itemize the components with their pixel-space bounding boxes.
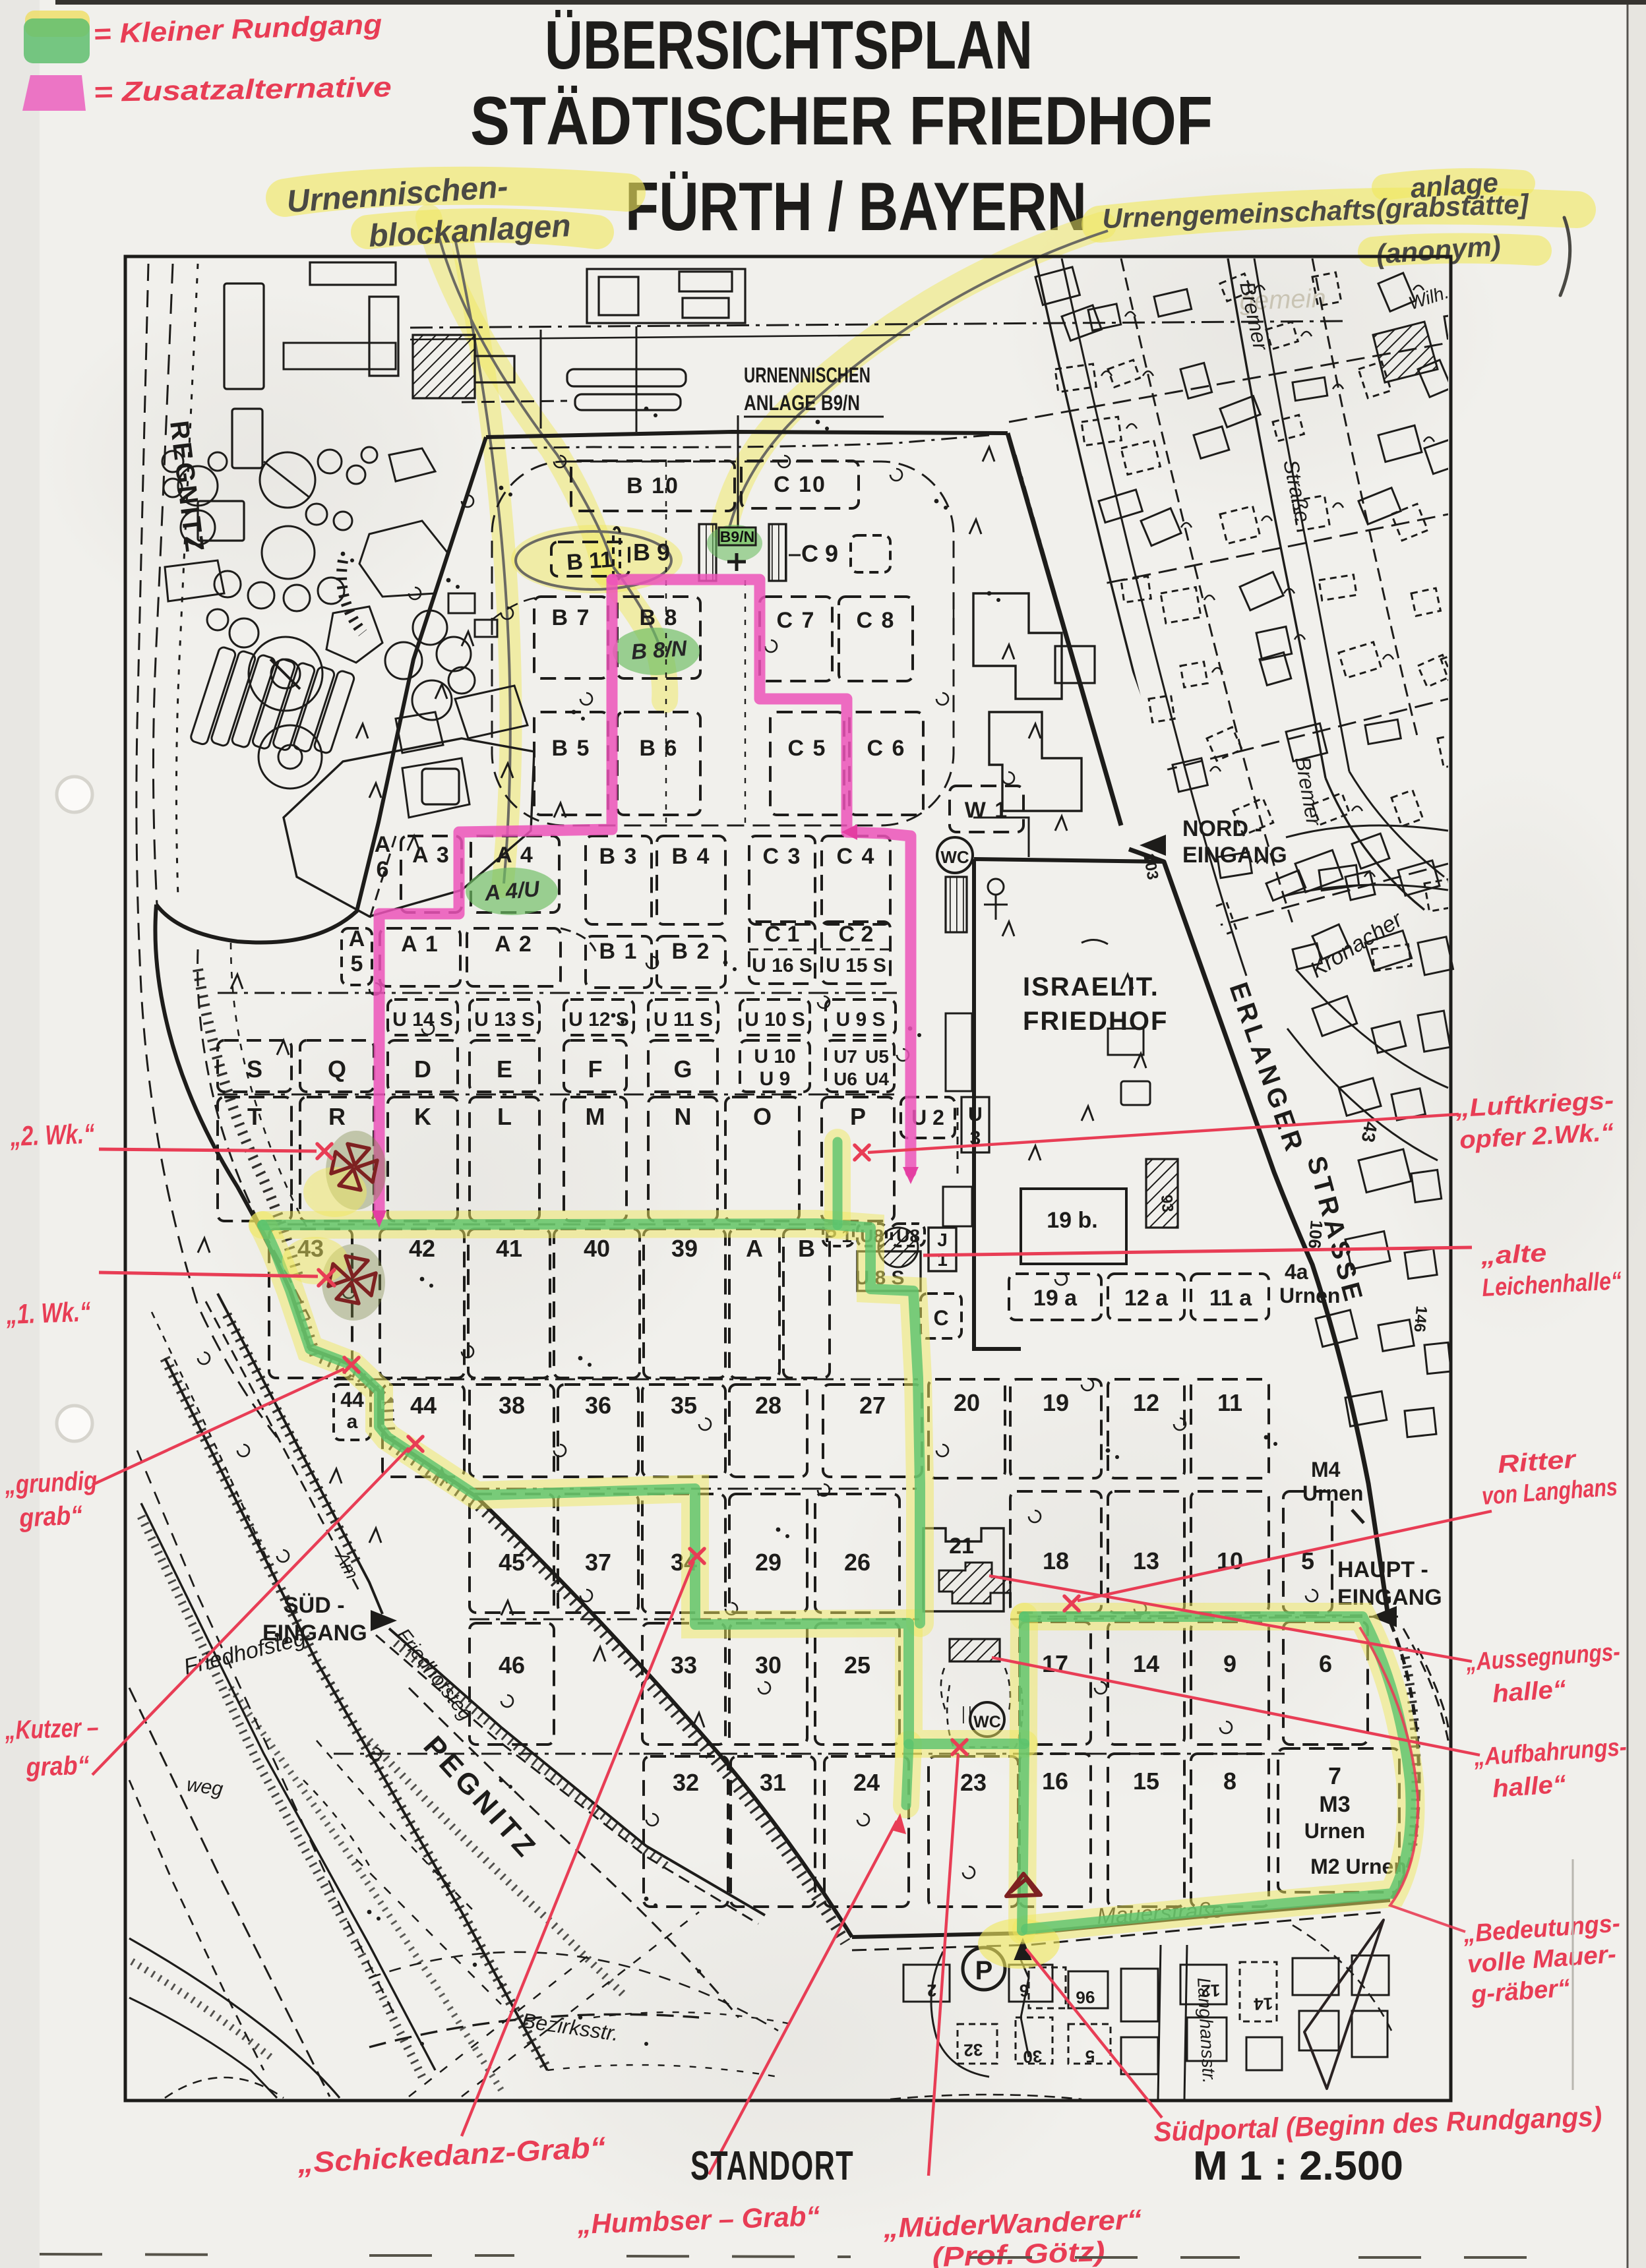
svg-text:FRIEDHOF: FRIEDHOF [1023, 1007, 1168, 1036]
svg-text:U 11 S: U 11 S [654, 1009, 713, 1030]
svg-text:18: 18 [1043, 1547, 1069, 1574]
svg-text:U 10 S: U 10 S [745, 1009, 805, 1030]
svg-text:C 10: C 10 [774, 472, 826, 497]
svg-text:N: N [675, 1103, 692, 1130]
svg-text:L: L [497, 1103, 512, 1130]
svg-text:C: C [933, 1306, 948, 1330]
svg-text:B 6: B 6 [640, 736, 679, 761]
svg-text:B 10: B 10 [626, 473, 679, 498]
svg-text:40: 40 [584, 1235, 610, 1262]
svg-text:G: G [673, 1056, 692, 1083]
svg-text:12: 12 [1133, 1389, 1159, 1416]
svg-text:A 4: A 4 [496, 843, 534, 868]
svg-text:U6: U6 [834, 1069, 857, 1089]
svg-text:„Kutzer –: „Kutzer – [4, 1713, 99, 1745]
svg-text:M 1 : 2.500: M 1 : 2.500 [1193, 2143, 1403, 2189]
svg-text:41: 41 [496, 1235, 522, 1262]
svg-text:B9/N: B9/N [720, 528, 754, 545]
svg-text:= Zusatzalternative: = Zusatzalternative [93, 71, 392, 107]
svg-text:93: 93 [1157, 1194, 1176, 1213]
svg-text:11: 11 [1217, 1389, 1242, 1416]
svg-text:14: 14 [1133, 1650, 1159, 1677]
svg-text:U 10: U 10 [754, 1046, 795, 1067]
svg-text:30: 30 [755, 1652, 781, 1679]
svg-text:25: 25 [844, 1652, 870, 1679]
svg-text:C 5: C 5 [788, 736, 827, 761]
svg-text:„1. Wk.“: „1. Wk.“ [5, 1296, 91, 1330]
svg-text:35: 35 [671, 1392, 697, 1419]
svg-text:B 8/N: B 8/N [630, 636, 688, 664]
svg-text:42: 42 [409, 1235, 435, 1262]
svg-text:16: 16 [1042, 1768, 1068, 1795]
svg-text:32: 32 [673, 1769, 699, 1796]
svg-text:S: S [247, 1056, 262, 1083]
svg-text:grab“: grab“ [18, 1501, 83, 1533]
svg-text:U 2: U 2 [911, 1106, 944, 1129]
svg-text:WC: WC [973, 1713, 1001, 1731]
svg-text:146: 146 [1411, 1305, 1430, 1332]
svg-text:P: P [850, 1103, 866, 1130]
svg-text:23: 23 [960, 1769, 987, 1796]
svg-text:STÄDTISCHER FRIEDHOF: STÄDTISCHER FRIEDHOF [470, 83, 1213, 160]
svg-text:Ritter: Ritter [1497, 1446, 1578, 1479]
svg-text:29: 29 [755, 1549, 781, 1576]
svg-text:Urnen: Urnen [1304, 1819, 1365, 1843]
svg-text:37: 37 [585, 1549, 611, 1576]
svg-text:27: 27 [859, 1392, 886, 1419]
svg-text:19 b.: 19 b. [1047, 1208, 1097, 1233]
svg-text:O: O [753, 1103, 772, 1130]
svg-text:B 7: B 7 [552, 605, 591, 630]
svg-text:B 2: B 2 [672, 939, 711, 964]
svg-text:F: F [588, 1056, 603, 1083]
svg-text:30: 30 [1023, 2046, 1043, 2067]
svg-text:9: 9 [1223, 1650, 1236, 1677]
svg-text:43: 43 [1358, 1120, 1382, 1144]
svg-text:WC: WC [940, 847, 969, 867]
svg-text:33: 33 [671, 1652, 697, 1679]
svg-text:36: 36 [585, 1392, 611, 1419]
svg-text:M4: M4 [1311, 1458, 1341, 1481]
svg-text:ISRAELIT.: ISRAELIT. [1023, 972, 1159, 1001]
svg-text:E: E [497, 1056, 512, 1083]
svg-text:a: a [347, 1411, 358, 1433]
svg-text:„2. Wk.“: „2. Wk.“ [9, 1118, 95, 1152]
svg-text:„grundig: „grundig [3, 1466, 98, 1500]
svg-text:13: 13 [1133, 1547, 1159, 1574]
svg-text:21: 21 [949, 1534, 974, 1559]
svg-text:12 a: 12 a [1124, 1286, 1169, 1311]
svg-text:K: K [414, 1103, 431, 1130]
svg-text:B 5: B 5 [552, 736, 591, 761]
svg-text:U 15 S: U 15 S [826, 955, 886, 976]
svg-text:U 9 S: U 9 S [836, 1009, 885, 1030]
svg-text:grab“: grab“ [25, 1751, 90, 1782]
svg-text:28: 28 [755, 1392, 781, 1419]
svg-text:A: A [349, 926, 365, 951]
svg-text:C 8: C 8 [857, 608, 896, 633]
svg-text:A: A [375, 832, 391, 857]
svg-text:C 7: C 7 [777, 608, 816, 633]
svg-text:39: 39 [671, 1235, 698, 1262]
svg-text:U5: U5 [865, 1046, 889, 1067]
svg-text:20: 20 [954, 1389, 980, 1416]
svg-text:B 1: B 1 [599, 939, 638, 964]
svg-text:HAUPT -: HAUPT - [1337, 1557, 1428, 1582]
svg-text:B 8: B 8 [640, 605, 679, 630]
svg-text:T: T [247, 1103, 262, 1130]
svg-text:C 6: C 6 [867, 736, 906, 761]
svg-text:NORD -: NORD - [1182, 816, 1262, 841]
svg-text:Urnen: Urnen [1279, 1284, 1340, 1307]
svg-text:M3: M3 [1319, 1792, 1350, 1817]
svg-text:M: M [586, 1103, 605, 1130]
svg-text:STANDORT: STANDORT [690, 2143, 854, 2189]
svg-text:24: 24 [853, 1769, 880, 1796]
svg-text:ÜBERSICHTSPLAN: ÜBERSICHTSPLAN [545, 7, 1033, 84]
svg-text:A 2: A 2 [495, 932, 533, 957]
svg-text:A 4/U: A 4/U [483, 876, 541, 905]
svg-text:5: 5 [1085, 2046, 1095, 2066]
svg-text:26: 26 [844, 1549, 870, 1576]
svg-text:„alte: „alte [1479, 1239, 1547, 1270]
svg-text:C 4: C 4 [837, 844, 876, 869]
svg-text:C 2: C 2 [839, 922, 874, 947]
svg-text:C 9: C 9 [801, 540, 838, 567]
svg-text:ANLAGE B9/N: ANLAGE B9/N [744, 391, 860, 415]
svg-text:14: 14 [1253, 1994, 1273, 2014]
svg-text:R: R [328, 1103, 346, 1130]
svg-text:FÜRTH / BAYERN: FÜRTH / BAYERN [625, 169, 1087, 245]
svg-text:6: 6 [1319, 1650, 1332, 1677]
svg-text:46: 46 [499, 1652, 525, 1679]
svg-text:B 9: B 9 [633, 539, 670, 566]
svg-text:Q: Q [328, 1056, 346, 1083]
svg-text:32: 32 [963, 2040, 983, 2060]
svg-text:B 4: B 4 [672, 844, 711, 869]
svg-text:5: 5 [351, 951, 363, 976]
svg-text:A: A [746, 1235, 763, 1262]
svg-text:19: 19 [1043, 1389, 1069, 1416]
svg-text:J: J [937, 1230, 948, 1250]
svg-text:URNENNISCHEN: URNENNISCHEN [744, 363, 870, 387]
svg-text:U4: U4 [865, 1069, 889, 1089]
svg-text:15: 15 [1133, 1768, 1159, 1795]
svg-text:4a: 4a [1285, 1260, 1308, 1284]
svg-text:96: 96 [1076, 1987, 1095, 2008]
svg-text:U7: U7 [834, 1046, 857, 1067]
svg-text:B: B [798, 1235, 815, 1262]
svg-text:U 14 S: U 14 S [392, 1009, 453, 1030]
svg-text:C 1: C 1 [765, 922, 800, 947]
svg-text:38: 38 [499, 1392, 525, 1419]
svg-text:halle“: halle“ [1492, 1675, 1568, 1708]
svg-text:19 a: 19 a [1033, 1286, 1078, 1311]
svg-text:1: 1 [937, 1249, 948, 1270]
svg-text:B 11: B 11 [566, 547, 613, 576]
svg-text:A 1: A 1 [401, 932, 439, 957]
svg-text:44: 44 [410, 1392, 437, 1419]
svg-text:11 a: 11 a [1209, 1286, 1252, 1311]
svg-text:8: 8 [1223, 1768, 1236, 1795]
svg-text:(Prof. Götz): (Prof. Götz) [932, 2236, 1105, 2268]
svg-text:31: 31 [760, 1769, 786, 1796]
svg-text:C 3: C 3 [763, 844, 802, 869]
svg-text:106: 106 [1304, 1219, 1327, 1249]
svg-text:U 13 S: U 13 S [474, 1009, 535, 1030]
svg-text:halle“: halle“ [1492, 1770, 1568, 1803]
svg-text:U 9: U 9 [760, 1068, 791, 1090]
svg-text:U 12 S: U 12 S [568, 1009, 629, 1030]
svg-text:7: 7 [1328, 1762, 1341, 1789]
svg-text:B 3: B 3 [599, 844, 638, 869]
svg-text:D: D [414, 1056, 431, 1083]
svg-text:U 16 S: U 16 S [752, 955, 812, 976]
